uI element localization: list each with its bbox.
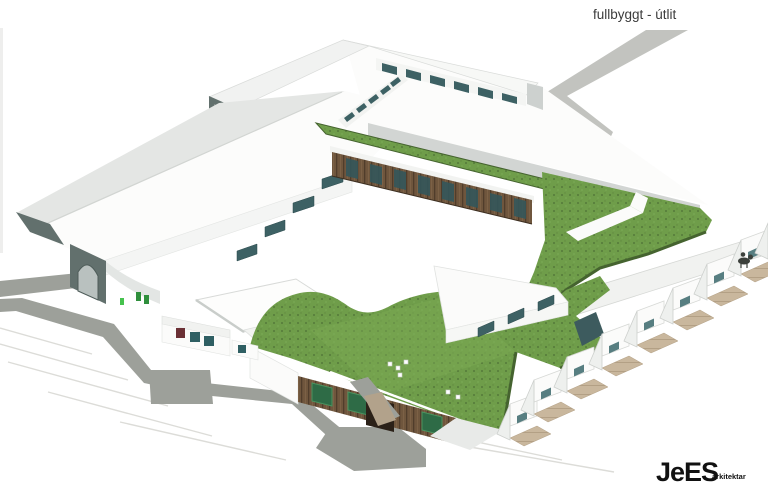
rendering-svg: fullbyggt - útlit JeES arkitektar (0, 0, 768, 489)
architectural-rendering-canvas: fullbyggt - útlit JeES arkitektar (0, 0, 768, 489)
logo-jees: JeES arkitektar (656, 457, 746, 487)
teal-window (190, 332, 200, 342)
red-window (176, 328, 185, 338)
green-marker (120, 298, 124, 305)
teal-window (204, 336, 214, 346)
green-door (144, 295, 149, 304)
arch-opening (78, 265, 98, 300)
frame-edge (0, 28, 3, 253)
logo-main-text: JeES (656, 457, 718, 487)
green-door (136, 292, 141, 301)
page-title: fullbyggt - útlit (593, 7, 677, 22)
logo-suffix-text: arkitektar (712, 472, 746, 481)
